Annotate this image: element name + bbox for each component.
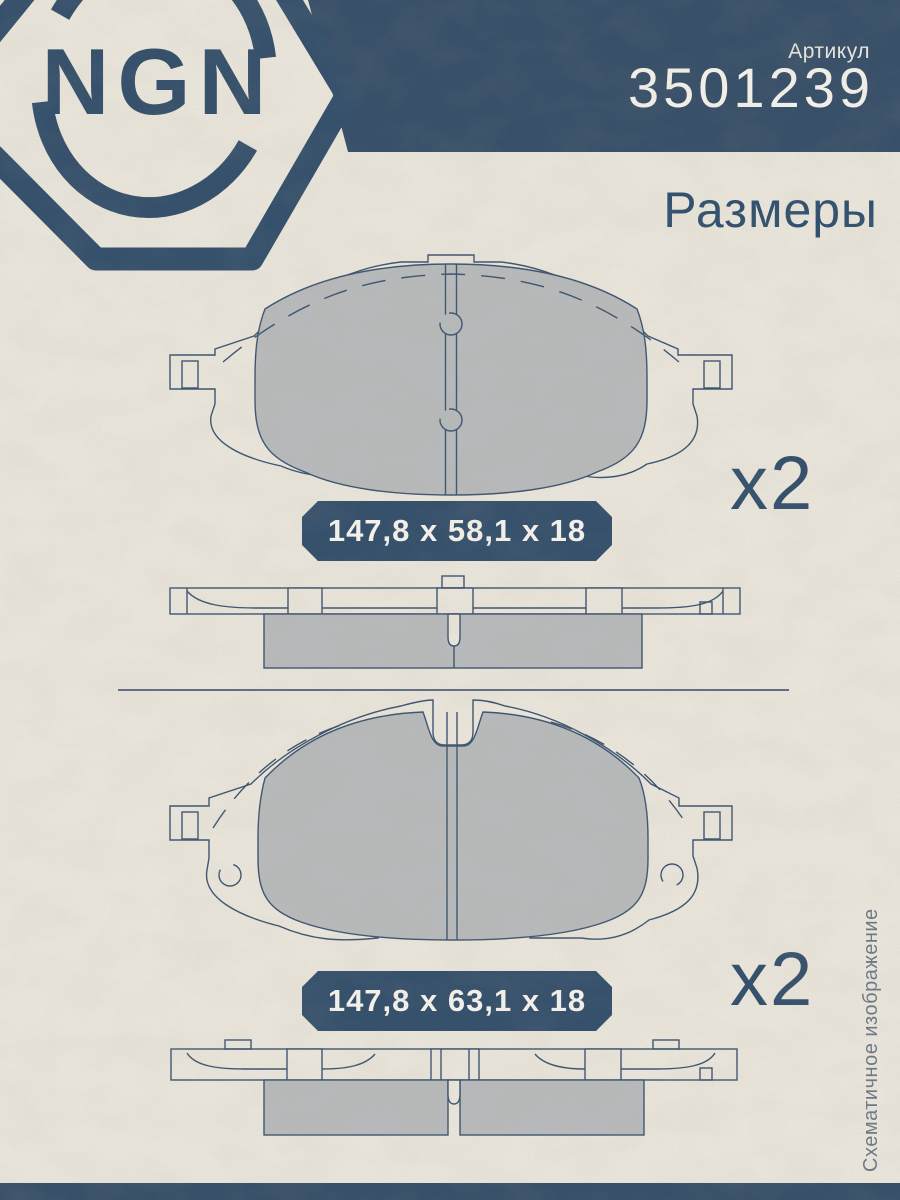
brand-logo-icon: NGN [0, 0, 380, 280]
center-top-tab [442, 576, 464, 588]
brake-pad-profile-view-1 [165, 575, 745, 675]
top-tab-left [225, 1040, 251, 1049]
plate-swoop-left1 [187, 1053, 287, 1069]
shim-rect-1 [287, 1049, 322, 1080]
wear-clip-top [440, 313, 462, 335]
profile-friction-right [460, 1080, 644, 1135]
right-ear-lug [704, 812, 720, 839]
friction-material [255, 264, 647, 495]
plate-ledge-left [187, 591, 288, 608]
product-card: { "brand": { "logo_text": "NGN" }, "head… [0, 0, 900, 1200]
right-ear-lug [704, 361, 720, 388]
quantity-label-1: x2 [730, 446, 814, 522]
page-title: Размеры [663, 184, 878, 236]
dimension-badge-2: 147,8 x 63,1 x 18 [302, 971, 612, 1031]
brake-pad-front-view-2 [161, 688, 741, 950]
left-ear-lug [182, 361, 198, 388]
spring-hole-right [661, 864, 683, 886]
shim-rect-3 [586, 588, 622, 614]
brake-pad-profile-view-2 [165, 1038, 745, 1138]
plate-ledge-right [622, 591, 723, 608]
center-box [431, 1049, 479, 1080]
shim-rect-2 [437, 588, 473, 614]
center-slot [448, 1080, 460, 1104]
schematic-note: Схематичное изображение [860, 862, 883, 1172]
wear-clip-bottom [440, 409, 462, 431]
plate-swoop-right2 [621, 1053, 715, 1069]
center-slot [448, 614, 460, 646]
logo-text: NGN [42, 29, 275, 134]
quantity-label-2: x2 [730, 942, 814, 1018]
plate-swoop-right1 [535, 1054, 585, 1069]
shim-rect-1 [288, 588, 322, 614]
left-ear-lug [182, 812, 198, 839]
brake-pad-front-view-1 [161, 252, 741, 510]
right-end-notch [700, 1068, 712, 1080]
top-tab-right [653, 1040, 679, 1049]
footer-bar [0, 1183, 900, 1200]
plate-swoop-left2 [322, 1054, 375, 1069]
friction-material [258, 712, 648, 940]
spring-hole-left [219, 864, 241, 886]
shim-rect-2 [585, 1049, 621, 1080]
profile-friction-left [264, 1080, 448, 1135]
article-number: 3501239 [628, 60, 874, 116]
dimension-badge-1: 147,8 x 58,1 x 18 [302, 501, 612, 561]
